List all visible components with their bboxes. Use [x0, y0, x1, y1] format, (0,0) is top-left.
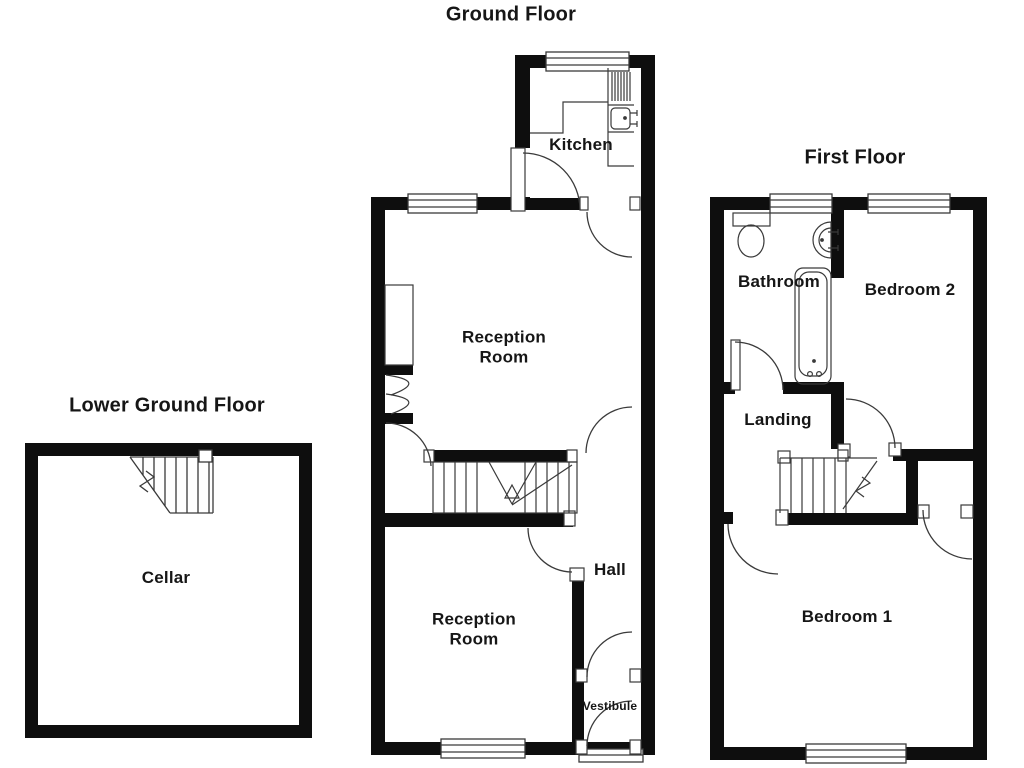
sink-taps [630, 110, 637, 127]
fireplace [385, 285, 413, 414]
room-label-bedroom-1: Bedroom 1 [802, 607, 893, 627]
kitchen-sink [611, 108, 630, 129]
room-label-reception-room-2: Reception Room [432, 609, 516, 648]
toilet [733, 213, 770, 257]
lower-ground-floor-title: Lower Ground Floor [69, 394, 265, 417]
ground-floor-title: Ground Floor [446, 3, 576, 26]
reception1-door-arc [586, 407, 632, 453]
bathroom-door-leaf [731, 340, 740, 390]
back-door-leaf [511, 148, 525, 211]
ground-staircase [433, 462, 577, 513]
vestibule-hall-door-arc [587, 632, 632, 677]
room-label-hall: Hall [594, 560, 626, 580]
room-label-reception-room-1: Reception Room [462, 327, 546, 366]
room-label-cellar: Cellar [142, 568, 190, 588]
first-floor-title: First Floor [804, 146, 905, 169]
first-staircase [780, 458, 877, 513]
bedroom2-door-arc [846, 399, 895, 448]
cellar-walls [25, 443, 312, 738]
bathroom-fixtures [733, 213, 838, 384]
worktop-corner [530, 102, 608, 133]
lower-ground-floor-plan [25, 443, 312, 738]
reception2-door-arc [528, 528, 572, 572]
bedroom1-door-arc [728, 524, 778, 574]
kitchen-door-arc [587, 212, 632, 257]
room-label-vestibule: Vestibule [583, 700, 638, 714]
ground-floor-plan [371, 52, 655, 762]
bathroom-door-arc [735, 342, 783, 390]
ground-door-arcs [386, 153, 632, 746]
room-label-bathroom: Bathroom [738, 272, 820, 292]
alcove [385, 285, 413, 365]
room-label-bedroom-2: Bedroom 2 [865, 280, 956, 300]
cellar-staircase [130, 450, 213, 513]
floorplan-page: Lower Ground Floor Ground Floor First Fl… [0, 0, 1024, 768]
draining-board [612, 72, 630, 101]
room-label-kitchen: Kitchen [549, 135, 613, 155]
room-label-landing: Landing [744, 410, 812, 430]
floorplan-linework [0, 0, 1024, 768]
